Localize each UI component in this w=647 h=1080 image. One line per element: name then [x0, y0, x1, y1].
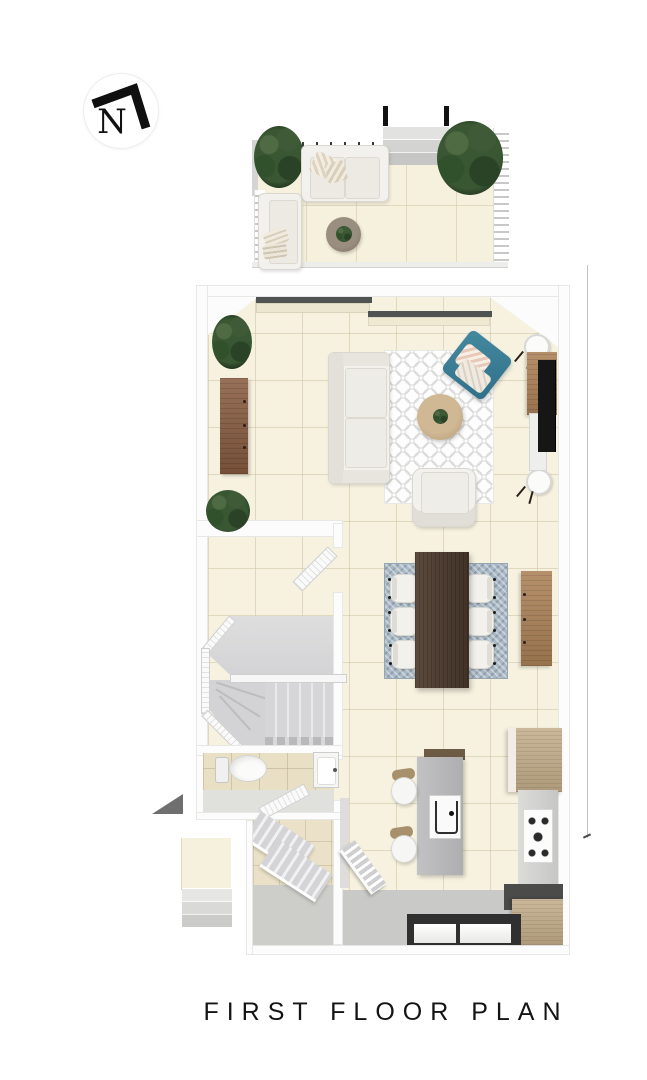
north-indicator: N	[84, 74, 158, 148]
toilet-bowl	[229, 755, 267, 782]
coffee-table-plant	[433, 409, 448, 424]
property-line	[587, 265, 588, 838]
balcony-sofa	[301, 145, 389, 202]
cooktop	[523, 809, 553, 863]
living-armchair	[412, 468, 476, 527]
divider-wall-upper	[333, 523, 343, 548]
sink-tap	[333, 768, 337, 772]
floor-plan-canvas: N	[0, 0, 647, 1080]
kitchen-upper-cabinet	[508, 728, 562, 792]
island-sink	[429, 795, 461, 839]
wall-right	[558, 285, 570, 955]
porch-tiles	[181, 838, 231, 890]
dining-sideboard	[521, 571, 552, 666]
tv-screen	[538, 360, 555, 452]
dining-table	[415, 552, 469, 688]
plan-title: FIRST FLOOR PLAN	[196, 998, 576, 1027]
balcony-plant-right	[437, 121, 503, 195]
wall-bottom	[246, 945, 570, 955]
toilet-tank	[215, 757, 229, 783]
living-sofa	[328, 352, 390, 484]
living-plant-top	[212, 315, 252, 369]
porch-steps	[182, 888, 232, 926]
floor-window-panel	[460, 924, 511, 943]
living-plant-bottom	[206, 490, 250, 532]
island-faucet	[449, 811, 454, 816]
balcony-table-plant	[336, 226, 352, 242]
sliding-door-glass-2	[368, 317, 490, 326]
bathroom-sink	[313, 752, 339, 788]
north-arrow-icon	[84, 74, 158, 148]
hall-gray-floor	[253, 885, 333, 945]
floor-window-panel	[414, 924, 456, 943]
balcony-chaise	[258, 193, 302, 270]
sliding-door-glass-1	[256, 303, 370, 313]
hall-left-wall	[246, 820, 253, 955]
bar-stool	[391, 777, 417, 805]
stairwell-wall-strip	[340, 798, 349, 888]
dining-chair	[467, 574, 494, 603]
stair-bay-rail-side	[201, 648, 210, 714]
dining-chair	[467, 607, 494, 636]
entrance-marker-triangle	[152, 794, 183, 814]
dining-chair	[391, 640, 418, 669]
dining-chair	[467, 640, 494, 669]
side-table-bottom	[526, 469, 552, 495]
wall-top	[196, 285, 570, 297]
wall-left	[196, 285, 208, 820]
floor-window-inset	[407, 914, 521, 945]
living-sideboard	[220, 378, 248, 474]
stair-handrail	[230, 674, 347, 683]
dining-chair	[390, 607, 417, 636]
balcony-plant-left	[254, 126, 304, 188]
sink-basin	[435, 801, 458, 834]
bar-stool	[391, 835, 417, 863]
dining-chair	[390, 574, 417, 603]
